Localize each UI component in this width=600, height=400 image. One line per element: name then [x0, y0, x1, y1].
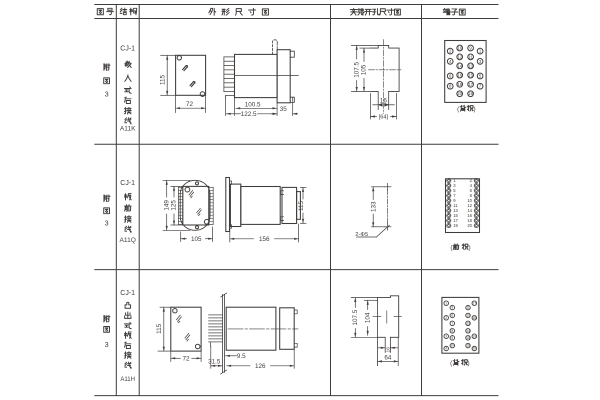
svg-text:1: 1 — [445, 301, 447, 305]
svg-text:156: 156 — [259, 236, 270, 243]
svg-text:122.5: 122.5 — [241, 111, 257, 118]
svg-text:20: 20 — [457, 91, 462, 96]
svg-text:3: 3 — [105, 89, 109, 98]
svg-text:): ) — [469, 245, 471, 252]
svg-text:115: 115 — [298, 200, 305, 211]
svg-text:105: 105 — [191, 236, 202, 243]
svg-text:16: 16 — [466, 344, 470, 348]
svg-text:9.5: 9.5 — [237, 353, 246, 360]
svg-text:3: 3 — [105, 340, 109, 349]
svg-text:107.5: 107.5 — [353, 61, 360, 77]
svg-text:126: 126 — [255, 363, 266, 370]
svg-text:15: 15 — [466, 336, 470, 340]
svg-text:104: 104 — [364, 312, 371, 323]
svg-text:7: 7 — [451, 321, 453, 325]
svg-text:105: 105 — [361, 64, 368, 75]
svg-text:72: 72 — [186, 101, 194, 108]
svg-text:): ) — [468, 360, 470, 367]
svg-text:17: 17 — [468, 82, 473, 87]
svg-text:19: 19 — [468, 91, 473, 96]
svg-text:10: 10 — [457, 46, 462, 51]
svg-text:15: 15 — [468, 73, 473, 78]
svg-text:A11K: A11K — [120, 126, 136, 133]
svg-text:20: 20 — [473, 347, 477, 351]
svg-text:3: 3 — [445, 334, 447, 338]
svg-text:A11Q: A11Q — [120, 237, 136, 244]
svg-text:10: 10 — [451, 344, 455, 348]
svg-text:CJ-1: CJ-1 — [120, 180, 135, 187]
svg-text:CJ-1: CJ-1 — [120, 46, 135, 53]
svg-text:16: 16 — [380, 98, 388, 105]
svg-text:[64]: [64] — [379, 115, 389, 121]
svg-text:115: 115 — [156, 323, 163, 334]
svg-text:19: 19 — [473, 334, 477, 338]
svg-text:125: 125 — [171, 200, 178, 211]
svg-text:): ) — [474, 106, 476, 113]
svg-text:14: 14 — [457, 63, 462, 68]
svg-text:133: 133 — [370, 201, 377, 212]
svg-text:115: 115 — [159, 74, 166, 85]
svg-text:149: 149 — [163, 200, 170, 211]
svg-text:64: 64 — [384, 354, 392, 361]
svg-text:17: 17 — [473, 301, 477, 305]
svg-text:100.5: 100.5 — [245, 101, 261, 108]
svg-text:16: 16 — [457, 73, 462, 78]
svg-text:16: 16 — [386, 347, 392, 353]
svg-text:18: 18 — [457, 82, 462, 87]
svg-text:12: 12 — [466, 314, 470, 318]
svg-text:18: 18 — [473, 316, 477, 320]
svg-text:31.5: 31.5 — [208, 358, 221, 365]
svg-text:11: 11 — [466, 306, 470, 310]
svg-text:35: 35 — [280, 106, 288, 113]
svg-text:3: 3 — [105, 219, 109, 228]
svg-text:20: 20 — [467, 223, 472, 228]
svg-text:5: 5 — [451, 306, 453, 310]
svg-text:CJ-1: CJ-1 — [120, 290, 135, 297]
svg-text:12: 12 — [457, 54, 462, 59]
svg-text:13: 13 — [466, 321, 470, 325]
svg-text:9: 9 — [451, 336, 453, 340]
svg-text:6: 6 — [451, 314, 453, 318]
svg-text:13: 13 — [468, 63, 473, 68]
svg-text:2: 2 — [445, 316, 447, 320]
svg-text:A11H: A11H — [120, 377, 135, 383]
svg-text:11: 11 — [468, 54, 473, 59]
svg-text:4: 4 — [445, 347, 447, 351]
svg-text:8: 8 — [451, 329, 453, 333]
svg-text:72: 72 — [182, 355, 190, 362]
svg-text:107.5: 107.5 — [352, 309, 359, 325]
svg-text:19: 19 — [453, 223, 458, 228]
svg-text:14: 14 — [466, 329, 470, 333]
